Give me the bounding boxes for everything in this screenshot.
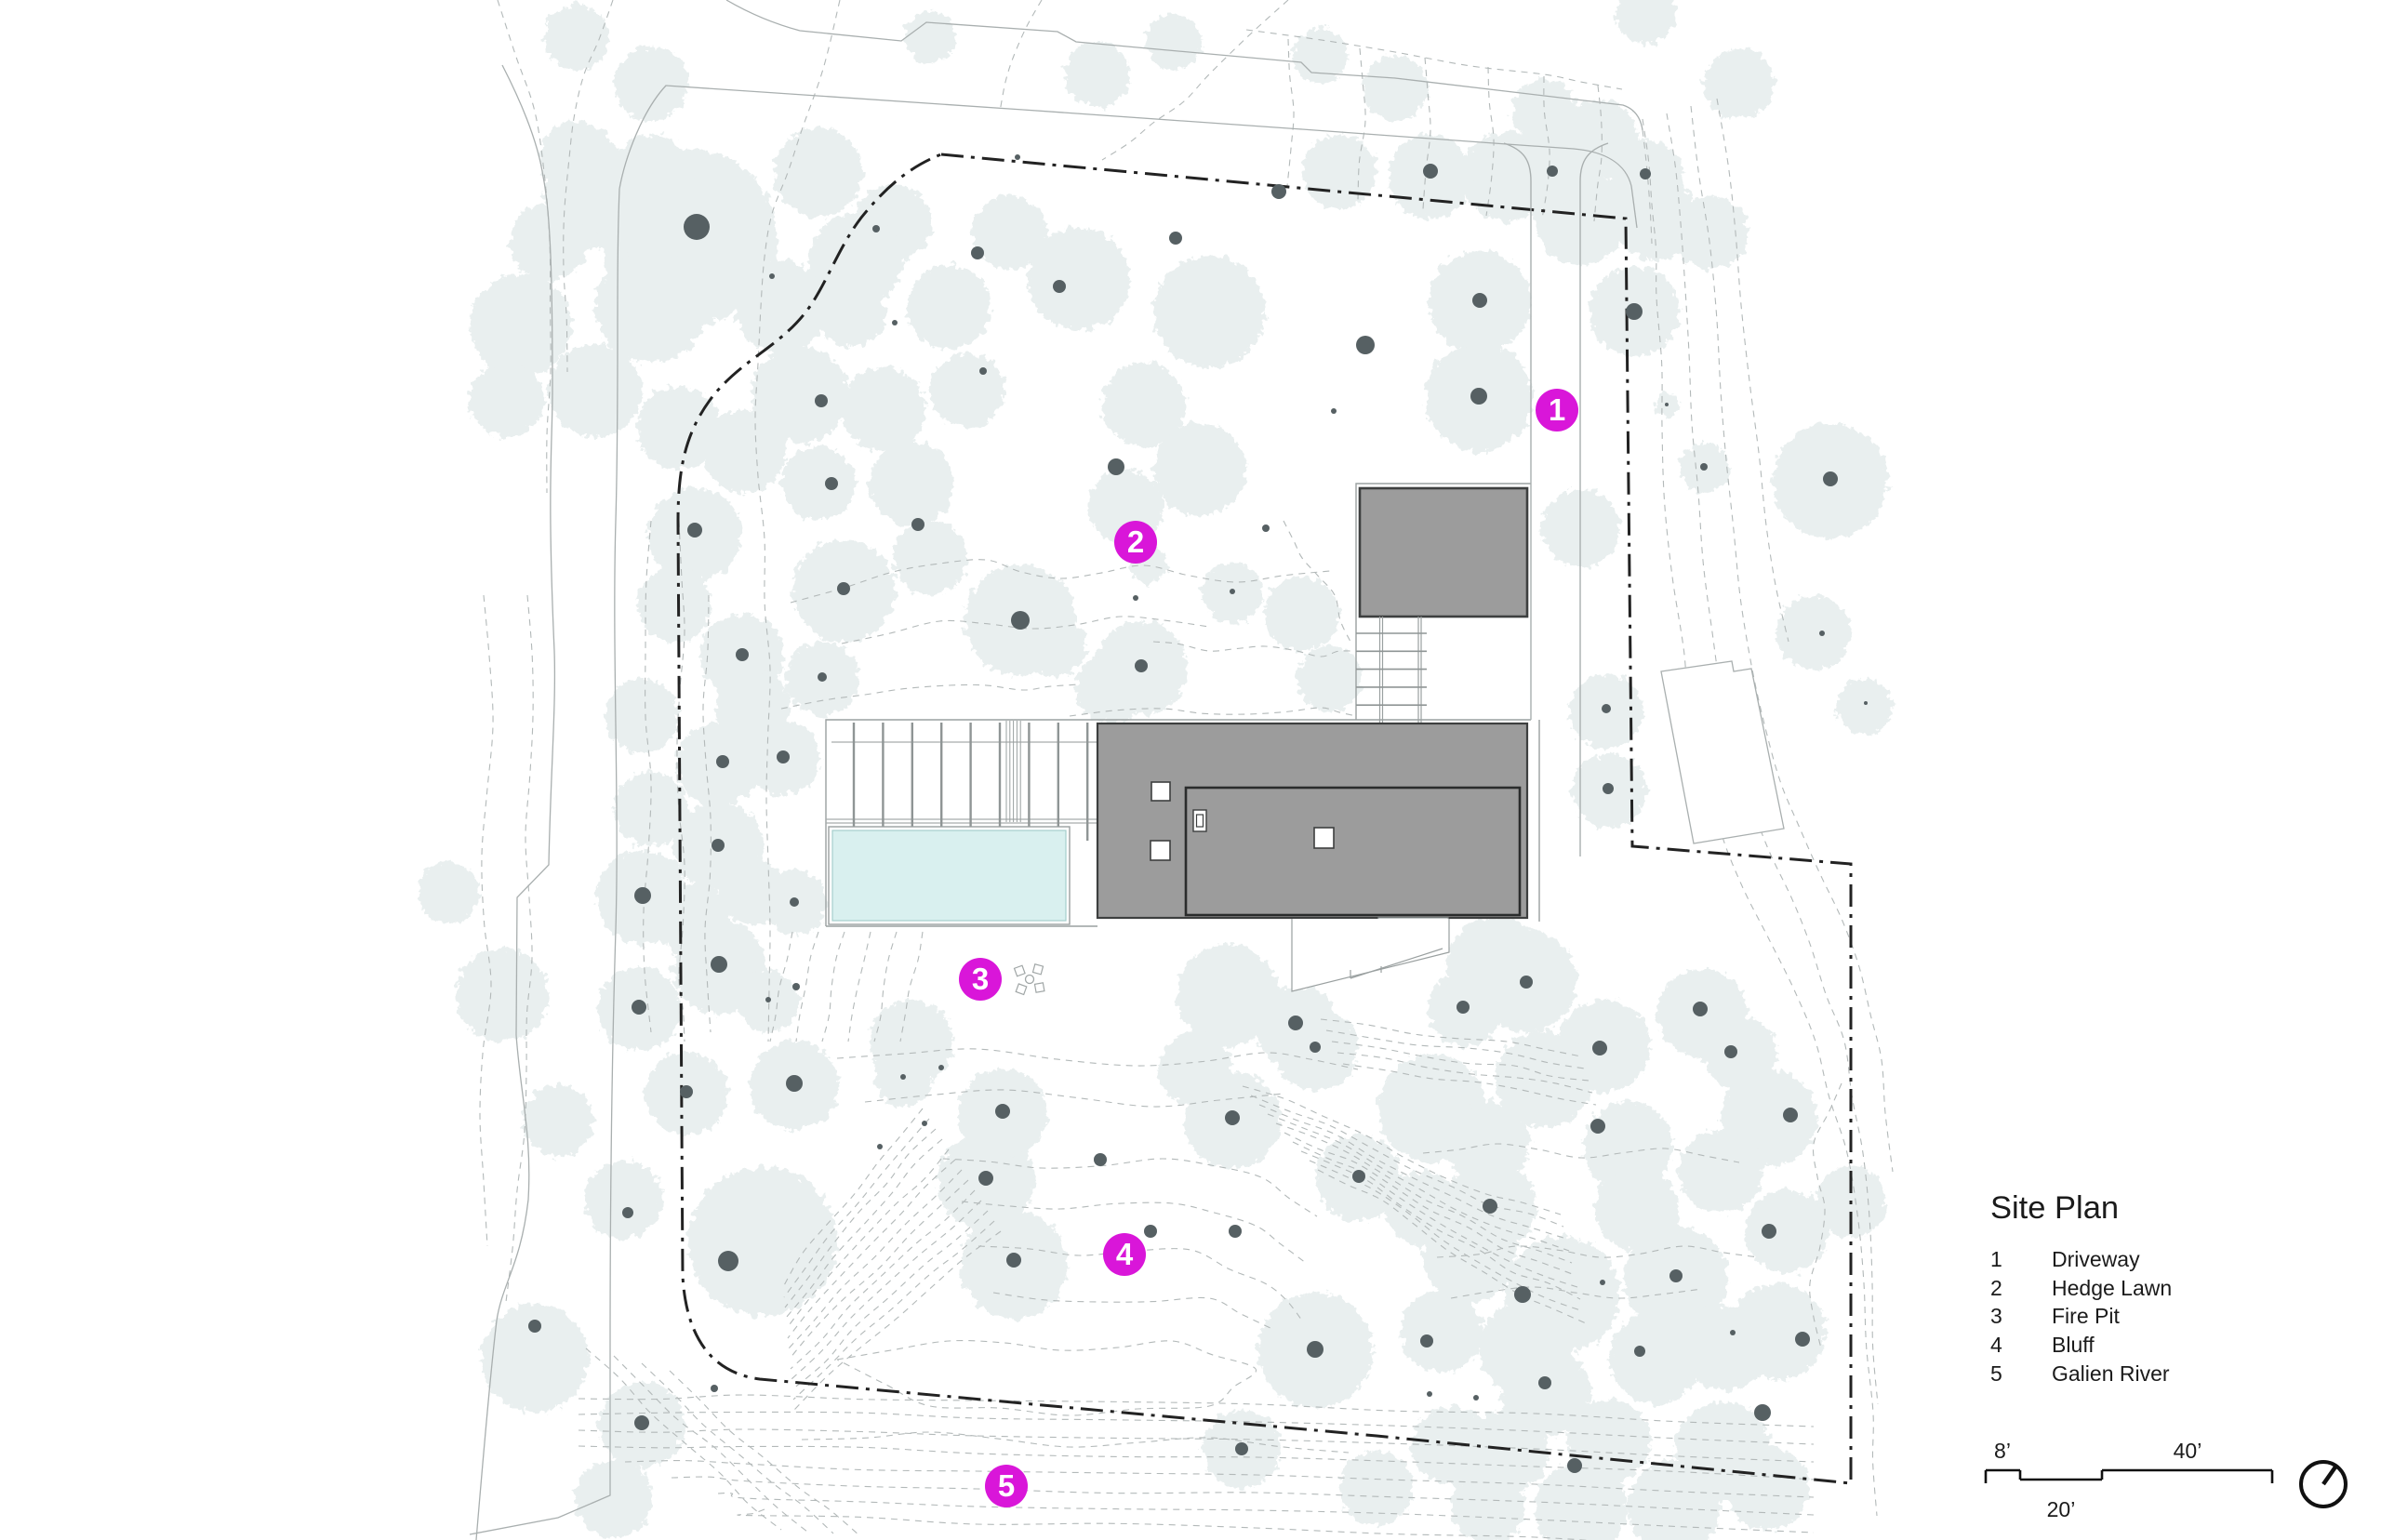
svg-text:4: 4 (1116, 1237, 1134, 1271)
svg-text:Bluff: Bluff (2052, 1333, 2095, 1357)
svg-text:2: 2 (1990, 1276, 2002, 1300)
svg-text:20’: 20’ (2047, 1497, 2076, 1521)
svg-text:1: 1 (1549, 392, 1565, 427)
svg-text:Driveway: Driveway (2052, 1247, 2140, 1271)
svg-text:Hedge Lawn: Hedge Lawn (2052, 1276, 2172, 1300)
svg-text:3: 3 (1990, 1304, 2002, 1328)
svg-text:Fire Pit: Fire Pit (2052, 1304, 2120, 1328)
svg-text:8’: 8’ (1994, 1439, 2011, 1463)
svg-text:5: 5 (1990, 1361, 2002, 1386)
svg-text:Site Plan: Site Plan (1990, 1190, 2119, 1226)
svg-text:1: 1 (1990, 1247, 2002, 1271)
svg-text:3: 3 (972, 962, 989, 996)
svg-text:2: 2 (1127, 524, 1144, 559)
svg-text:4: 4 (1990, 1333, 2002, 1357)
svg-text:5: 5 (998, 1468, 1015, 1503)
svg-text:40’: 40’ (2174, 1439, 2202, 1463)
svg-text:Galien River: Galien River (2052, 1361, 2170, 1386)
